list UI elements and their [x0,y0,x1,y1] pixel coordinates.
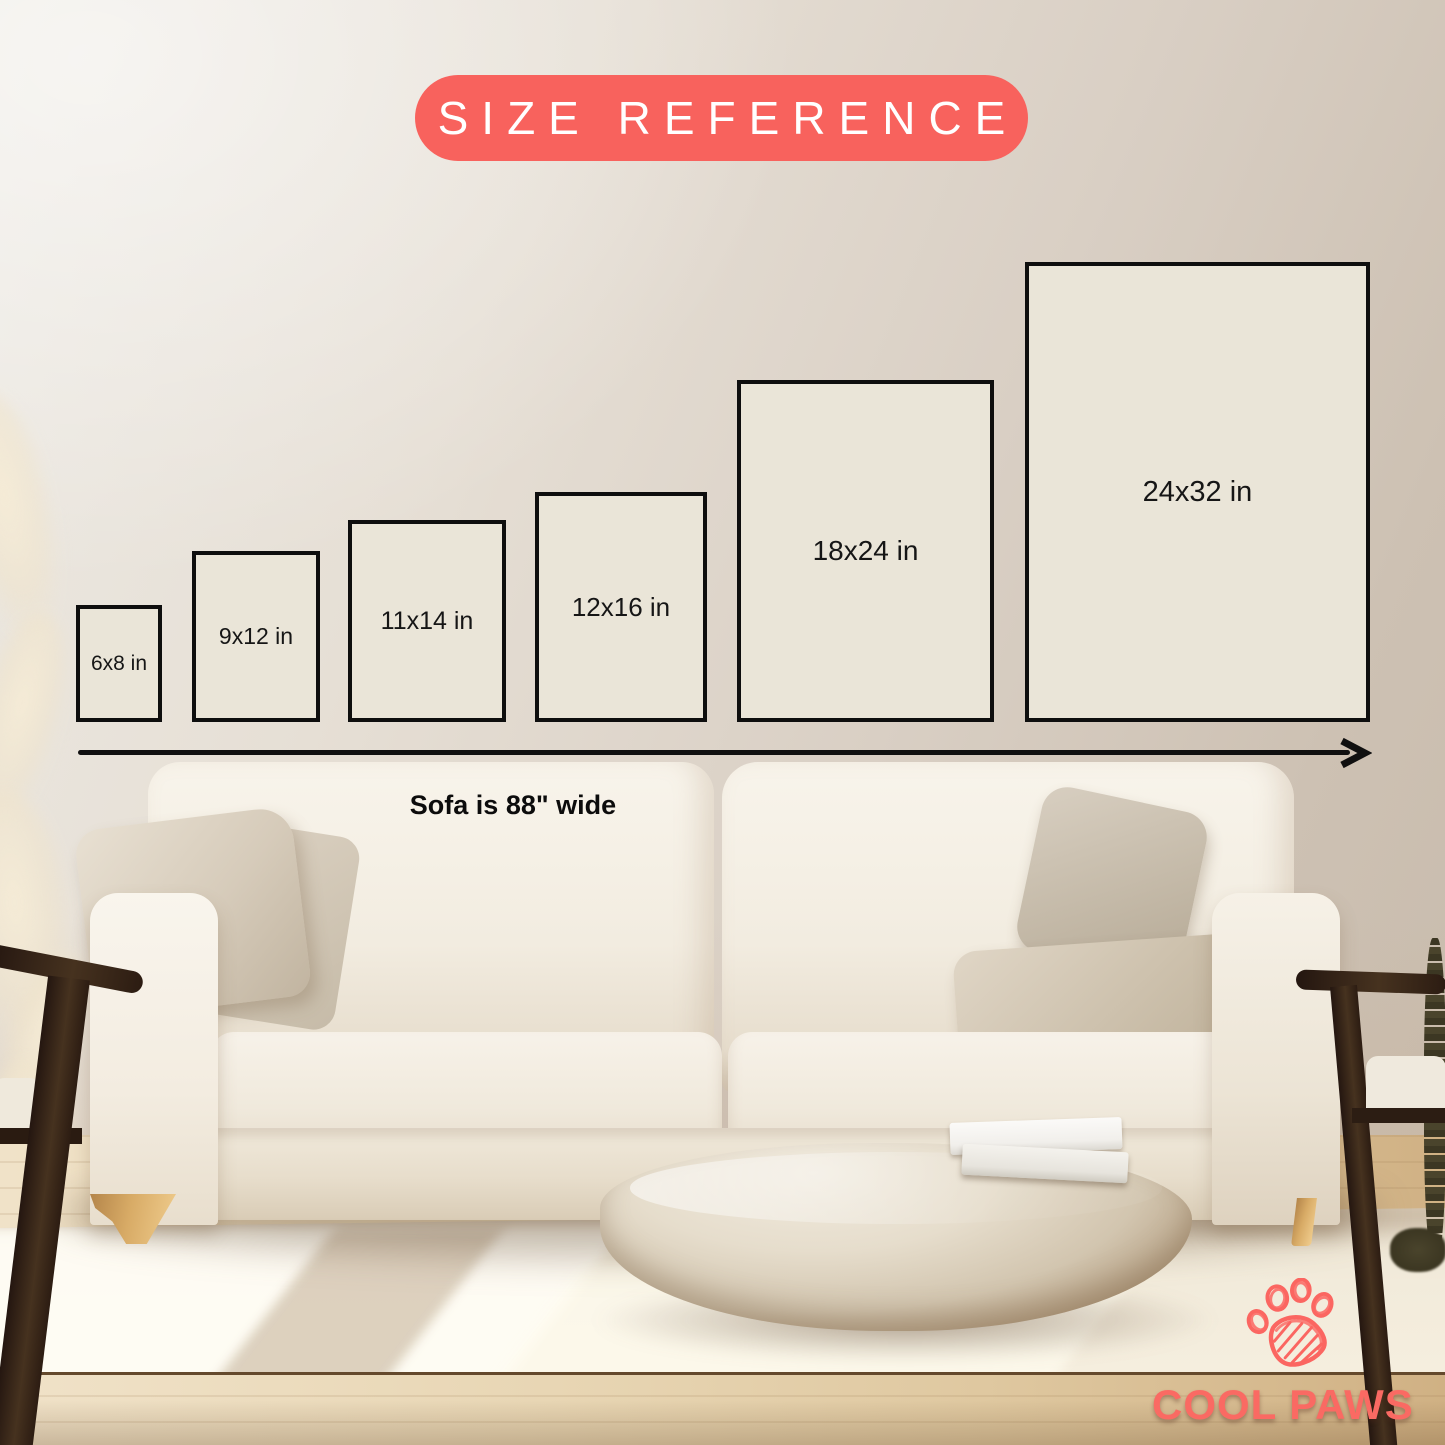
frame-11x14: 11x14 in [348,520,506,722]
frame-12x16: 12x16 in [535,492,707,722]
frame-size-label: 12x16 in [572,592,670,623]
photo-vignette [0,0,1445,1445]
frame-18x24: 18x24 in [737,380,994,722]
frame-size-label: 18x24 in [813,535,919,567]
paw-icon [1243,1278,1341,1372]
frame-6x8: 6x8 in [76,605,162,722]
size-reference-image: SIZE REFERENCE 6x8 in 9x12 in 11x14 in 1… [0,0,1445,1445]
size-reference-pill: SIZE REFERENCE [415,75,1028,161]
width-axis-line [78,750,1350,755]
sofa-width-caption: Sofa is 88" wide [388,790,638,821]
frame-size-label: 9x12 in [219,623,293,650]
frame-size-label: 24x32 in [1143,476,1253,509]
frame-24x32: 24x32 in [1025,262,1370,722]
brand-name: COOL PAWS [1152,1381,1432,1429]
frame-size-label: 6x8 in [91,652,147,676]
arrow-head-icon [1334,734,1372,772]
frame-size-label: 11x14 in [381,607,474,636]
size-reference-title: SIZE REFERENCE [425,91,1019,145]
frame-9x12: 9x12 in [192,551,320,722]
